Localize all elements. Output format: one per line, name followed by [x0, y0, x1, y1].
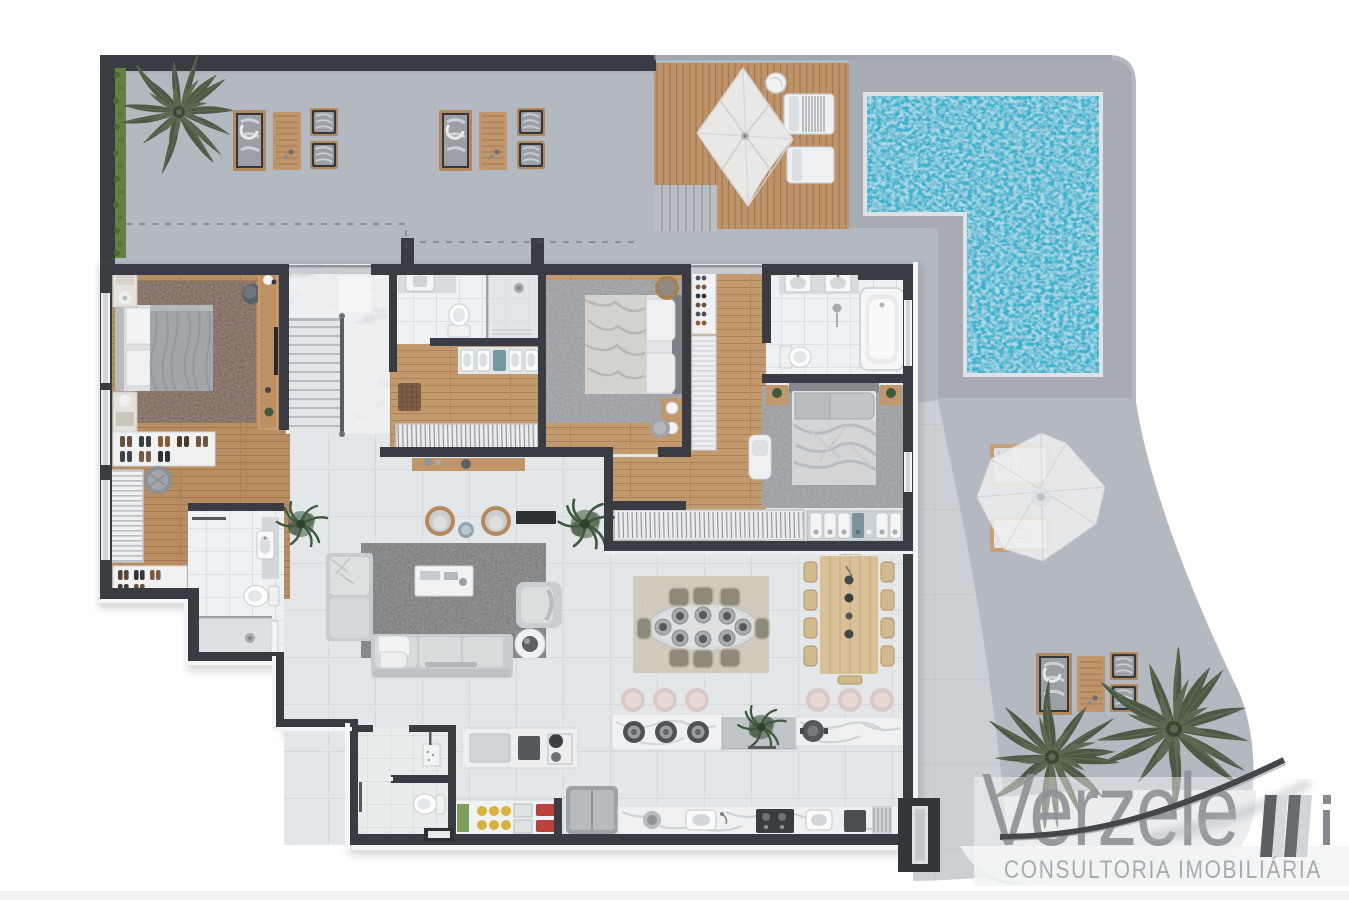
svg-text:CONSULTORIA IMOBILIÁRIA: CONSULTORIA IMOBILIÁRIA	[1004, 855, 1322, 884]
svg-text:Verzele: Verzele	[982, 752, 1238, 867]
